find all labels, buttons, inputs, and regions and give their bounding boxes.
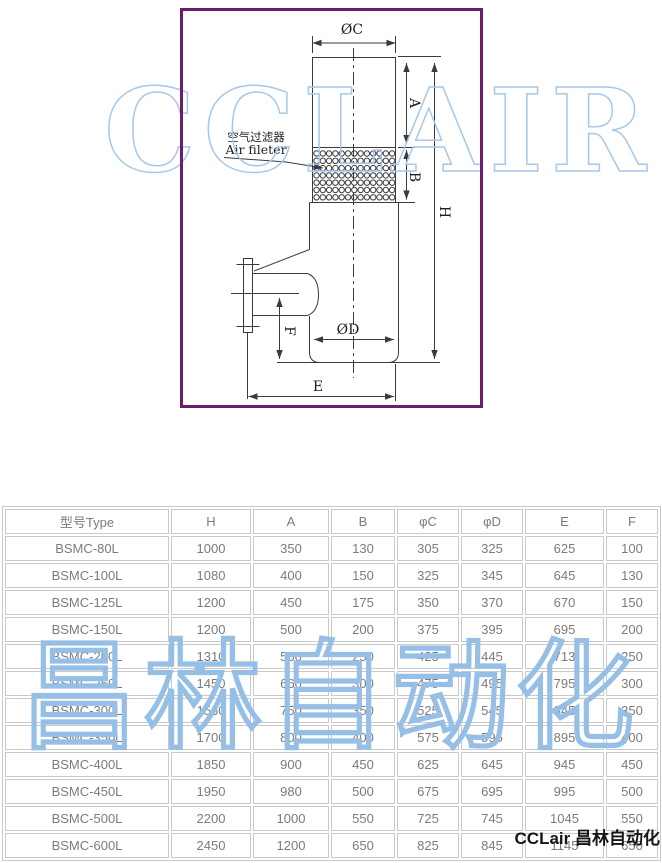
value-cell: 250 <box>606 644 658 669</box>
value-cell: 713 <box>525 644 604 669</box>
table-row: BSMC-300L1560750350525545845350 <box>5 698 658 723</box>
value-cell: 325 <box>461 536 523 561</box>
model-cell: BSMC-400L <box>5 752 169 777</box>
value-cell: 130 <box>606 563 658 588</box>
value-cell: 425 <box>397 644 459 669</box>
inlet-pipe <box>231 250 319 400</box>
dim-label-f: F <box>281 326 297 336</box>
dim-label-h: H <box>436 206 452 218</box>
table-row: BSMC-400L1850900450625645945450 <box>5 752 658 777</box>
model-cell: BSMC-125L <box>5 590 169 615</box>
filter-technical-drawing: ØC A B H F ØD E 空气过滤器 Air fileter <box>0 0 662 430</box>
value-cell: 375 <box>397 617 459 642</box>
value-cell: 475 <box>397 671 459 696</box>
value-cell: 500 <box>253 617 329 642</box>
model-cell: BSMC-250L <box>5 671 169 696</box>
value-cell: 1950 <box>171 779 251 804</box>
value-cell: 645 <box>461 752 523 777</box>
value-cell: 495 <box>461 671 523 696</box>
value-cell: 980 <box>253 779 329 804</box>
value-cell: 2450 <box>171 833 251 858</box>
value-cell: 2200 <box>171 806 251 831</box>
header-h: H <box>171 509 251 534</box>
header-phi-d: φD <box>461 509 523 534</box>
value-cell: 625 <box>525 536 604 561</box>
header-a: A <box>253 509 329 534</box>
value-cell: 305 <box>397 536 459 561</box>
value-cell: 400 <box>253 563 329 588</box>
air-filter-label-en: Air fileter <box>224 142 286 157</box>
value-cell: 1200 <box>171 617 251 642</box>
value-cell: 1850 <box>171 752 251 777</box>
value-cell: 695 <box>525 617 604 642</box>
value-cell: 350 <box>397 590 459 615</box>
model-cell: BSMC-150L <box>5 617 169 642</box>
footer-brand-text: CCLair 昌林自动化 <box>515 824 660 849</box>
table-row: BSMC-200L1310560250425445713250 <box>5 644 658 669</box>
value-cell: 400 <box>606 725 658 750</box>
value-cell: 325 <box>397 563 459 588</box>
dim-label-b: B <box>406 172 422 182</box>
header-phi-c: φC <box>397 509 459 534</box>
value-cell: 660 <box>253 671 329 696</box>
value-cell: 945 <box>525 752 604 777</box>
value-cell: 1080 <box>171 563 251 588</box>
value-cell: 595 <box>461 725 523 750</box>
value-cell: 130 <box>331 536 395 561</box>
value-cell: 1000 <box>171 536 251 561</box>
dim-label-phi-c: ØC <box>341 22 363 38</box>
value-cell: 550 <box>331 806 395 831</box>
value-cell: 350 <box>606 698 658 723</box>
model-cell: BSMC-80L <box>5 536 169 561</box>
value-cell: 675 <box>397 779 459 804</box>
inlet-flange <box>244 259 253 333</box>
value-cell: 300 <box>331 671 395 696</box>
value-cell: 500 <box>606 779 658 804</box>
value-cell: 1200 <box>171 590 251 615</box>
model-cell: BSMC-350L <box>5 725 169 750</box>
dim-label-e: E <box>313 379 323 395</box>
value-cell: 450 <box>253 590 329 615</box>
value-cell: 800 <box>253 725 329 750</box>
header-b: B <box>331 509 395 534</box>
spec-table-body: BSMC-80L1000350130305325625100BSMC-100L1… <box>5 536 658 858</box>
value-cell: 500 <box>331 779 395 804</box>
model-cell: BSMC-300L <box>5 698 169 723</box>
dim-label-phi-d: ØD <box>337 322 360 338</box>
value-cell: 300 <box>606 671 658 696</box>
table-header-row: 型号Type H A B φC φD E F <box>5 509 658 534</box>
value-cell: 350 <box>253 536 329 561</box>
model-cell: BSMC-450L <box>5 779 169 804</box>
value-cell: 1560 <box>171 698 251 723</box>
value-cell: 400 <box>331 725 395 750</box>
value-cell: 450 <box>606 752 658 777</box>
value-cell: 545 <box>461 698 523 723</box>
value-cell: 825 <box>397 833 459 858</box>
table-row: BSMC-450L1950980500675695995500 <box>5 779 658 804</box>
table-row: BSMC-100L1080400150325345645130 <box>5 563 658 588</box>
value-cell: 1450 <box>171 671 251 696</box>
spec-table: 型号Type H A B φC φD E F BSMC-80L100035013… <box>2 506 661 861</box>
value-cell: 450 <box>331 752 395 777</box>
value-cell: 345 <box>461 563 523 588</box>
value-cell: 1700 <box>171 725 251 750</box>
value-cell: 575 <box>397 725 459 750</box>
value-cell: 750 <box>253 698 329 723</box>
header-f: F <box>606 509 658 534</box>
value-cell: 350 <box>331 698 395 723</box>
value-cell: 900 <box>253 752 329 777</box>
value-cell: 1000 <box>253 806 329 831</box>
table-row: BSMC-250L1450660300475495795300 <box>5 671 658 696</box>
header-e: E <box>525 509 604 534</box>
value-cell: 995 <box>525 779 604 804</box>
value-cell: 625 <box>397 752 459 777</box>
dim-label-a: A <box>406 97 422 109</box>
value-cell: 1310 <box>171 644 251 669</box>
value-cell: 395 <box>461 617 523 642</box>
value-cell: 795 <box>525 671 604 696</box>
value-cell: 670 <box>525 590 604 615</box>
value-cell: 725 <box>397 806 459 831</box>
value-cell: 695 <box>461 779 523 804</box>
value-cell: 175 <box>331 590 395 615</box>
value-cell: 525 <box>397 698 459 723</box>
value-cell: 200 <box>606 617 658 642</box>
model-cell: BSMC-600L <box>5 833 169 858</box>
value-cell: 1200 <box>253 833 329 858</box>
table-row: BSMC-125L1200450175350370670150 <box>5 590 658 615</box>
value-cell: 895 <box>525 725 604 750</box>
table-row: BSMC-350L1700800400575595895400 <box>5 725 658 750</box>
value-cell: 200 <box>331 617 395 642</box>
value-cell: 370 <box>461 590 523 615</box>
value-cell: 845 <box>525 698 604 723</box>
value-cell: 100 <box>606 536 658 561</box>
value-cell: 560 <box>253 644 329 669</box>
value-cell: 150 <box>331 563 395 588</box>
value-cell: 650 <box>331 833 395 858</box>
header-model: 型号Type <box>5 509 169 534</box>
value-cell: 445 <box>461 644 523 669</box>
table-row: BSMC-150L1200500200375395695200 <box>5 617 658 642</box>
value-cell: 250 <box>331 644 395 669</box>
table-row: BSMC-80L1000350130305325625100 <box>5 536 658 561</box>
model-cell: BSMC-500L <box>5 806 169 831</box>
model-cell: BSMC-100L <box>5 563 169 588</box>
value-cell: 150 <box>606 590 658 615</box>
filter-leader-line <box>224 158 323 169</box>
model-cell: BSMC-200L <box>5 644 169 669</box>
value-cell: 645 <box>525 563 604 588</box>
